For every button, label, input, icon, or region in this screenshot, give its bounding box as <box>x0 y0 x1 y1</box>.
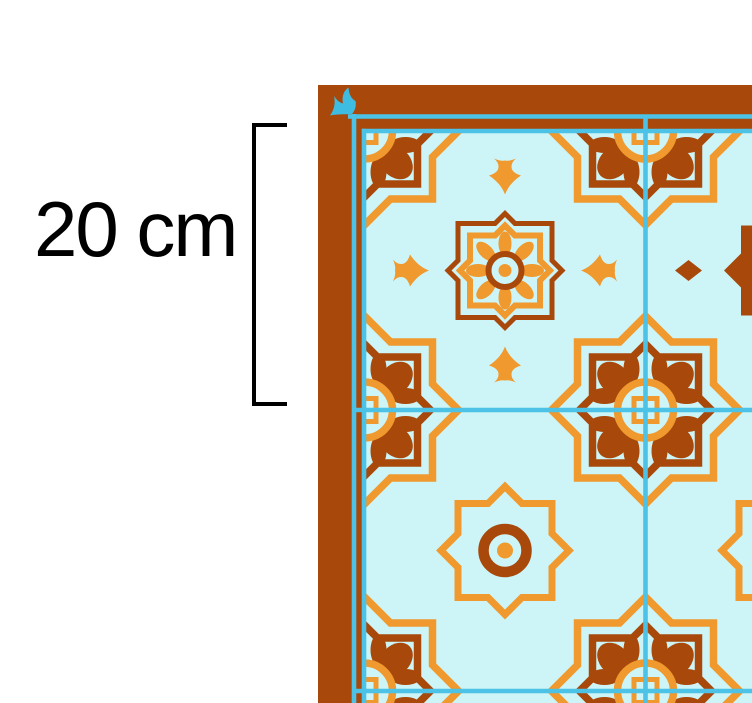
measurement-label: 20 cm <box>34 190 236 268</box>
measurement-bracket <box>254 125 287 404</box>
tile-pattern-figure <box>0 0 752 703</box>
tile-measurement-diagram: 20 cm <box>0 0 752 703</box>
